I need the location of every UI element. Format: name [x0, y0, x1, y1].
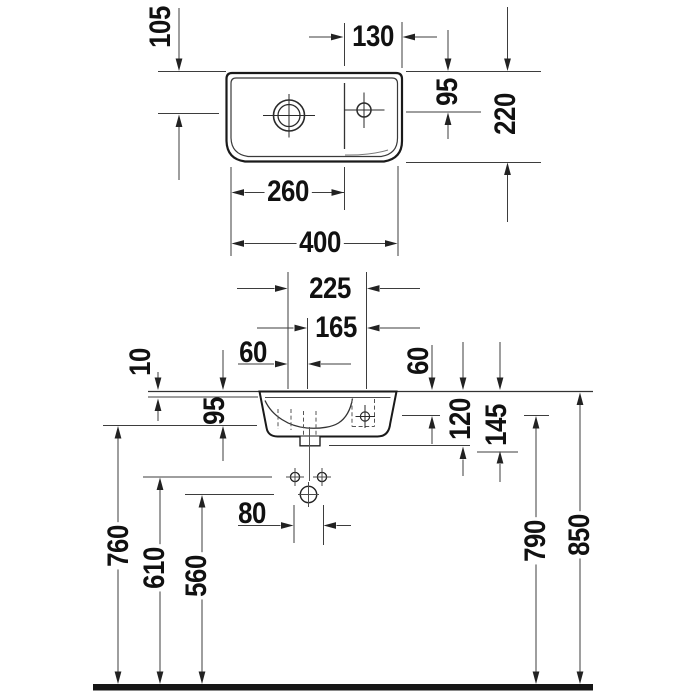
arrowhead — [497, 378, 504, 391]
arrowhead — [155, 378, 162, 391]
dim-label-145: 145 — [482, 404, 512, 446]
arrowhead — [577, 672, 584, 685]
dim-label-120: 120 — [446, 398, 476, 440]
arrowhead — [115, 426, 122, 439]
dim-label-10: 10 — [126, 348, 156, 376]
arrowhead — [275, 285, 288, 292]
arrowhead — [445, 113, 452, 126]
arrowhead — [367, 285, 380, 292]
arrowhead — [232, 240, 245, 247]
arrowhead — [445, 59, 452, 72]
arrowhead — [460, 447, 467, 460]
dim-label-790: 790 — [521, 518, 551, 565]
arrowhead — [331, 34, 344, 41]
arrowhead — [403, 34, 416, 41]
arrowhead — [324, 522, 337, 529]
arrowhead — [533, 416, 540, 429]
arrowhead — [295, 325, 308, 332]
arrowhead — [332, 189, 345, 196]
dim-label-95-front: 95 — [200, 397, 230, 425]
arrowhead — [504, 59, 511, 72]
arrowhead — [232, 189, 245, 196]
dim-label-610: 610 — [140, 545, 170, 592]
arrowhead — [155, 399, 162, 412]
arrowhead — [176, 59, 183, 72]
front-view-basin — [260, 392, 397, 508]
dim-label-760: 760 — [104, 523, 134, 570]
arrowhead — [199, 495, 206, 508]
dim-label-220: 220 — [491, 93, 521, 135]
floor-line — [93, 684, 593, 691]
top-view-basin — [227, 73, 403, 162]
arrowhead — [275, 361, 288, 368]
arrowhead — [533, 672, 540, 685]
arrowhead — [429, 378, 436, 391]
dim-label-850: 850 — [565, 512, 595, 559]
basin-body — [260, 392, 397, 437]
washbasin-dimension-drawing — [0, 0, 700, 700]
arrowhead — [577, 393, 584, 406]
dim-label-225: 225 — [309, 274, 351, 304]
arrowhead — [460, 378, 467, 391]
arrowhead — [199, 672, 206, 685]
dim-label-95-top: 95 — [433, 78, 463, 106]
arrowhead — [308, 361, 321, 368]
arrowhead — [367, 325, 380, 332]
wall-fixing-holes — [286, 468, 331, 507]
arrowhead — [429, 416, 436, 429]
dim-label-165: 165 — [315, 313, 357, 343]
technical-drawing-page: 105 130 95 220 260 400 225 165 60 60 10 … — [0, 0, 700, 700]
arrowhead — [504, 163, 511, 176]
dim-label-130: 130 — [352, 22, 394, 52]
basin-outer-rim — [227, 73, 403, 162]
arrowhead — [157, 478, 164, 491]
arrowhead — [385, 240, 398, 247]
arrowhead — [220, 426, 227, 439]
arrowhead — [176, 115, 183, 128]
dim-label-560: 560 — [182, 553, 212, 600]
dim-label-105: 105 — [146, 6, 176, 48]
arrowhead — [497, 451, 504, 464]
dim-label-260: 260 — [265, 177, 312, 207]
dim-label-60-right: 60 — [404, 347, 434, 375]
arrowhead — [220, 378, 227, 391]
arrowhead — [157, 672, 164, 685]
arrowhead — [281, 522, 294, 529]
dim-label-400: 400 — [297, 228, 344, 258]
dim-label-80: 80 — [238, 499, 266, 529]
dim-label-60-left: 60 — [239, 338, 267, 368]
arrowhead — [115, 672, 122, 685]
